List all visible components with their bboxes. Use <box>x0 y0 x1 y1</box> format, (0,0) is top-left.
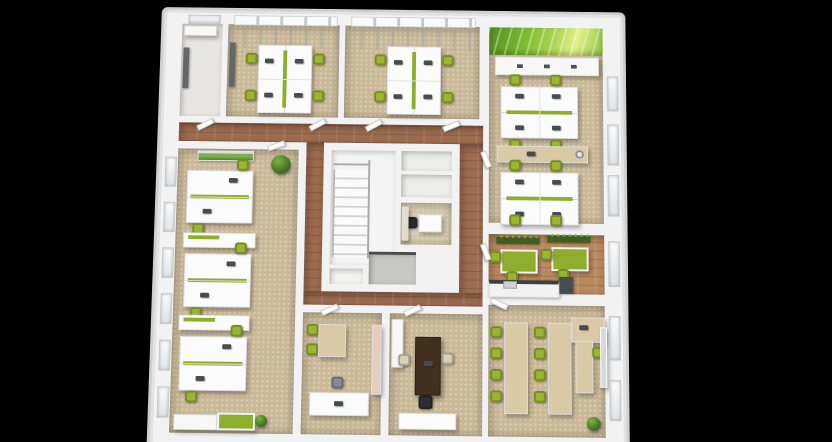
office-building-floorplan <box>152 13 624 442</box>
team-office-b-floor <box>344 26 480 120</box>
seminar-table-row <box>548 323 572 415</box>
window <box>188 15 221 24</box>
seminar-chair <box>490 347 502 359</box>
desk-pair <box>178 336 247 391</box>
window <box>164 157 177 187</box>
potted-plant <box>271 155 291 174</box>
office-chair <box>230 325 242 337</box>
office-chair <box>374 91 386 102</box>
office-chair <box>245 90 257 101</box>
appliance-unit <box>559 277 573 293</box>
executive-desk <box>415 337 441 396</box>
window <box>608 175 620 217</box>
monitor-icon <box>226 261 235 266</box>
stair-landing <box>329 268 363 284</box>
clock <box>575 150 584 159</box>
presenter-desk-leg <box>575 341 593 394</box>
hanging-planter <box>547 236 590 243</box>
window <box>608 241 620 287</box>
window <box>609 316 621 361</box>
seminar-chair <box>490 369 502 381</box>
office-chair <box>550 215 562 227</box>
monitor-icon <box>424 60 433 65</box>
monitor-icon <box>264 93 273 98</box>
guest-armchair <box>442 353 454 365</box>
bistro-table <box>500 249 537 273</box>
window-band <box>234 15 338 26</box>
chair <box>306 343 318 355</box>
meeting-table <box>318 324 346 357</box>
office-chair <box>509 214 521 226</box>
cabinet-row <box>495 57 599 77</box>
stair-railing <box>367 160 370 258</box>
monitor-icon <box>203 209 212 214</box>
desk-cluster <box>500 172 578 226</box>
desk <box>309 392 369 416</box>
desk-cluster <box>386 46 441 115</box>
monitor-icon <box>393 94 402 99</box>
monitor-icon <box>334 401 343 406</box>
planter-divider <box>506 110 572 114</box>
monitor-icon <box>200 293 209 298</box>
accent-strip <box>183 318 214 322</box>
window <box>607 76 619 111</box>
desk-cluster <box>501 86 579 139</box>
window <box>158 340 171 371</box>
office-chair <box>375 54 387 65</box>
presenter-monitor <box>579 325 588 330</box>
monitor-icon <box>195 376 204 381</box>
guest-armchair <box>398 354 410 366</box>
corridor-right <box>459 144 483 306</box>
office-chair <box>246 53 258 64</box>
core-mini-office <box>400 203 451 245</box>
monitor-icon <box>295 59 304 64</box>
team-office-a-floor <box>226 24 340 117</box>
accent-strip <box>188 235 220 239</box>
planter-divider <box>506 196 572 201</box>
accent-strip <box>188 278 247 283</box>
cabinet-handle <box>517 64 523 68</box>
seminar-chair <box>534 327 546 339</box>
stair-railing <box>333 163 368 165</box>
desk-cluster <box>257 45 313 114</box>
office-chair <box>237 159 249 170</box>
corridor-top <box>179 122 484 144</box>
monitor-icon <box>515 125 524 130</box>
potted-plant <box>255 415 267 427</box>
shelf <box>401 206 408 240</box>
executive-chair <box>419 395 433 409</box>
storage-cell <box>401 151 452 171</box>
kitchenette-counter <box>488 280 559 298</box>
monitor-icon <box>222 344 231 349</box>
seminar-room-floor <box>488 305 606 438</box>
window <box>157 386 170 418</box>
chair <box>541 249 553 261</box>
monitor-icon <box>552 180 561 185</box>
wall-panel <box>229 43 236 87</box>
seminar-chair <box>534 369 546 381</box>
window <box>163 202 176 232</box>
monitor-icon <box>552 126 561 131</box>
corner-plant <box>587 417 601 431</box>
hanging-planter <box>496 237 539 244</box>
render-canvas <box>0 0 832 442</box>
office-chair <box>442 55 454 66</box>
monitor-icon <box>515 179 524 184</box>
corridor-bottom <box>303 291 482 307</box>
executive-office-floor <box>388 313 482 436</box>
cabinet-handle <box>571 65 577 69</box>
window <box>160 293 173 324</box>
bistro-table <box>551 247 588 271</box>
sideboard <box>398 413 456 430</box>
small-office-floor <box>301 312 382 435</box>
monitor-icon <box>515 94 524 99</box>
cabinet-handle <box>544 65 550 69</box>
wall-panel <box>182 47 189 88</box>
task-chair <box>331 377 343 389</box>
break-room-floor <box>488 234 604 295</box>
sink <box>503 281 517 289</box>
window <box>609 380 621 421</box>
chair <box>307 324 319 336</box>
accent-strip <box>183 361 243 366</box>
whiteboard <box>600 327 607 387</box>
seminar-chair <box>490 390 502 402</box>
seminar-table-row <box>504 322 528 414</box>
monitor-icon <box>294 93 303 98</box>
corridor-left <box>303 142 324 304</box>
office-chair <box>550 160 562 171</box>
bench <box>217 413 255 431</box>
open-office-left-floor <box>169 148 299 434</box>
office-chair <box>312 90 324 101</box>
copy-room-floor <box>179 24 222 117</box>
seminar-chair <box>534 348 546 360</box>
office-chair <box>509 74 521 85</box>
office-chair <box>509 160 521 171</box>
monitor-icon <box>394 60 403 65</box>
cabinet-row <box>173 414 217 430</box>
stair-steps <box>332 170 371 258</box>
planter-divider <box>412 52 416 109</box>
office-chair <box>313 54 325 65</box>
storage-cell <box>401 174 452 197</box>
elevator-niche <box>369 252 417 285</box>
seminar-chair <box>534 391 546 403</box>
desk-pair <box>183 253 251 307</box>
chair <box>490 251 502 263</box>
seminar-chair <box>490 326 502 338</box>
monitor-icon <box>265 59 274 64</box>
office-chair <box>185 391 197 403</box>
monitor-icon <box>424 361 433 366</box>
monitor-icon <box>229 178 238 183</box>
open-office-right-floor <box>489 27 604 224</box>
office-chair <box>442 92 454 103</box>
monitor-icon <box>423 94 432 99</box>
office-chair <box>550 75 562 86</box>
planter-divider <box>282 50 287 107</box>
shelf-unit <box>184 26 217 36</box>
office-chair <box>235 242 247 254</box>
monitor-icon <box>552 94 561 99</box>
window <box>161 247 174 278</box>
sideboard-items <box>527 152 536 157</box>
meadow-mural <box>489 27 602 56</box>
accent-strip <box>190 194 249 198</box>
mini-table <box>418 214 442 232</box>
window-band <box>351 17 476 28</box>
staircase-zone <box>330 150 396 265</box>
window <box>607 124 619 165</box>
tall-cabinet <box>371 325 382 395</box>
desk-pair <box>186 170 254 224</box>
